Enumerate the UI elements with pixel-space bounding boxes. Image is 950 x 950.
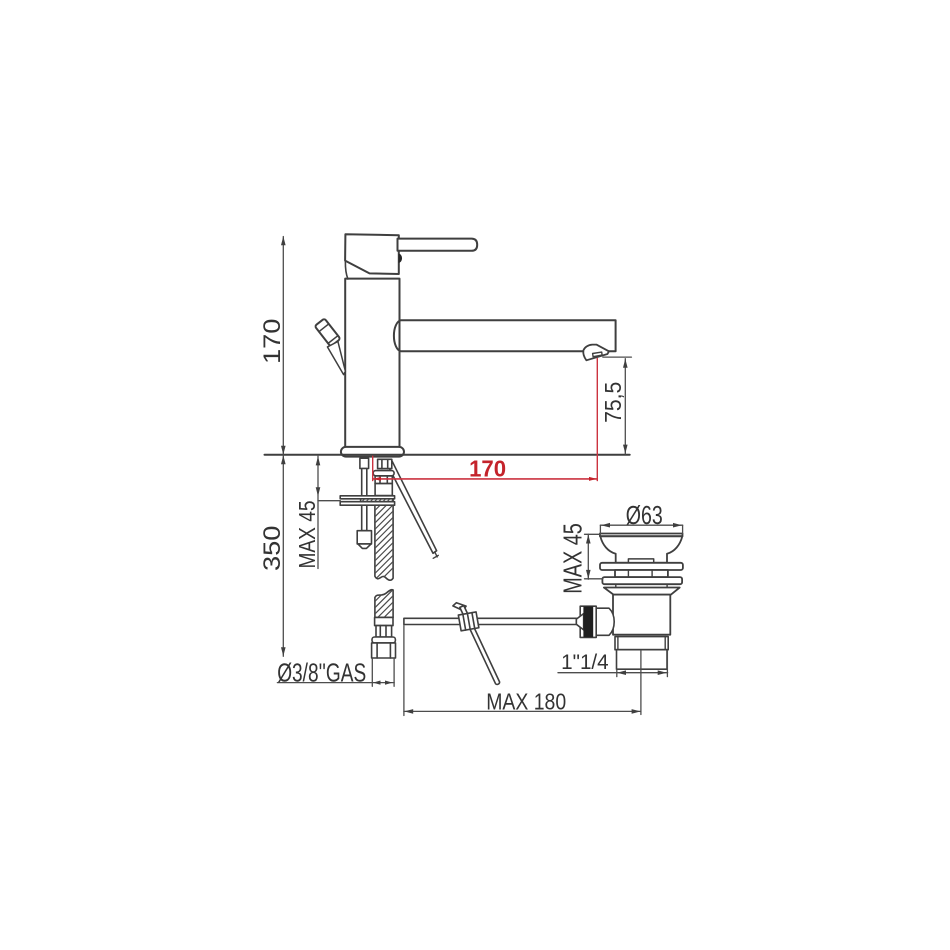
svg-text:1"1/4: 1"1/4 bbox=[561, 650, 609, 674]
svg-text:MAX 45: MAX 45 bbox=[294, 501, 320, 569]
svg-text:MAX 45: MAX 45 bbox=[558, 523, 588, 594]
svg-text:75,5: 75,5 bbox=[600, 382, 626, 423]
svg-text:170: 170 bbox=[259, 319, 286, 365]
svg-text:Ø3/8''GAS: Ø3/8''GAS bbox=[277, 659, 366, 687]
svg-text:MAX 180: MAX 180 bbox=[486, 688, 566, 714]
svg-text:350: 350 bbox=[259, 526, 286, 571]
svg-text:Ø63: Ø63 bbox=[626, 500, 663, 530]
svg-text:170: 170 bbox=[469, 455, 506, 481]
